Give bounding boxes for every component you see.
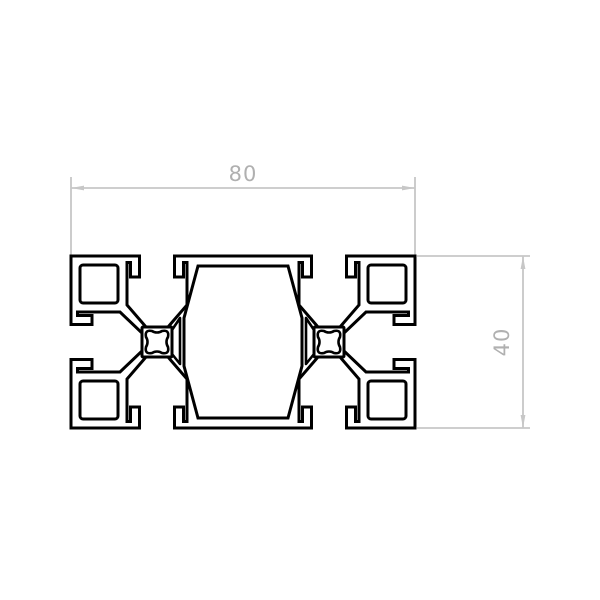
width-dimension-label: 80 bbox=[229, 162, 258, 186]
drawing-canvas: 80 40 bbox=[0, 0, 600, 600]
height-dimension-label: 40 bbox=[490, 328, 514, 357]
slit-cavity-left bbox=[172, 318, 180, 364]
slit-cavity-right bbox=[306, 318, 314, 364]
arrowhead-top-icon bbox=[521, 256, 526, 269]
arrowhead-left-icon bbox=[71, 186, 84, 191]
width-dimension: 80 bbox=[71, 162, 415, 255]
screw-channel-left bbox=[146, 331, 169, 354]
arrowhead-right-icon bbox=[402, 186, 415, 191]
profile-technical-drawing: 80 40 bbox=[0, 0, 600, 600]
corner-hollow-top-right bbox=[368, 265, 406, 303]
screw-channel-right bbox=[318, 331, 341, 354]
center-chamber bbox=[184, 266, 302, 418]
profile-outline bbox=[71, 256, 415, 428]
corner-hollow-bottom-left bbox=[80, 381, 118, 419]
arrowhead-bottom-icon bbox=[521, 415, 526, 428]
corner-hollow-top-left bbox=[80, 265, 118, 303]
height-dimension: 40 bbox=[417, 256, 530, 428]
corner-hollow-bottom-right bbox=[368, 381, 406, 419]
